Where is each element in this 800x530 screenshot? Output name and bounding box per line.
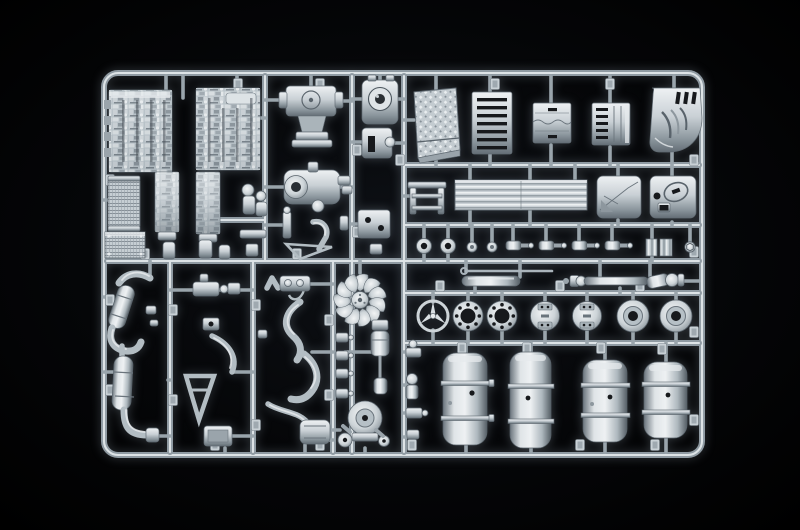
intercooler [105, 232, 145, 258]
fuel-tank-3 [581, 360, 630, 442]
engine-lower-right [196, 172, 220, 242]
slatted-panel [472, 92, 512, 154]
heat-shield [300, 420, 330, 444]
step-bracket [408, 182, 446, 214]
battery-cover-a [533, 103, 571, 143]
air-reservoir [462, 276, 520, 286]
hex-fitting [685, 242, 695, 252]
tread-plate [455, 180, 587, 210]
steering-gearbox [362, 128, 395, 158]
radiator [108, 176, 140, 231]
fuel-tank-4 [642, 362, 690, 438]
engine-block-half-right [196, 88, 260, 170]
engine-lower-left [155, 172, 179, 240]
studio-background [0, 0, 800, 530]
engine-block-half-left [104, 90, 172, 172]
battery-cover-b [592, 103, 630, 145]
photo-canvas [0, 0, 800, 530]
panel-square-left [597, 176, 641, 218]
diamond-plate-panel [414, 88, 460, 163]
fuel-tank-1 [441, 353, 494, 445]
sprue-photo [0, 0, 800, 530]
fuel-tank-2 [508, 352, 554, 448]
panel-square-right [650, 176, 696, 218]
mounting-plate [204, 426, 232, 446]
oil-filter-housing [362, 75, 398, 124]
